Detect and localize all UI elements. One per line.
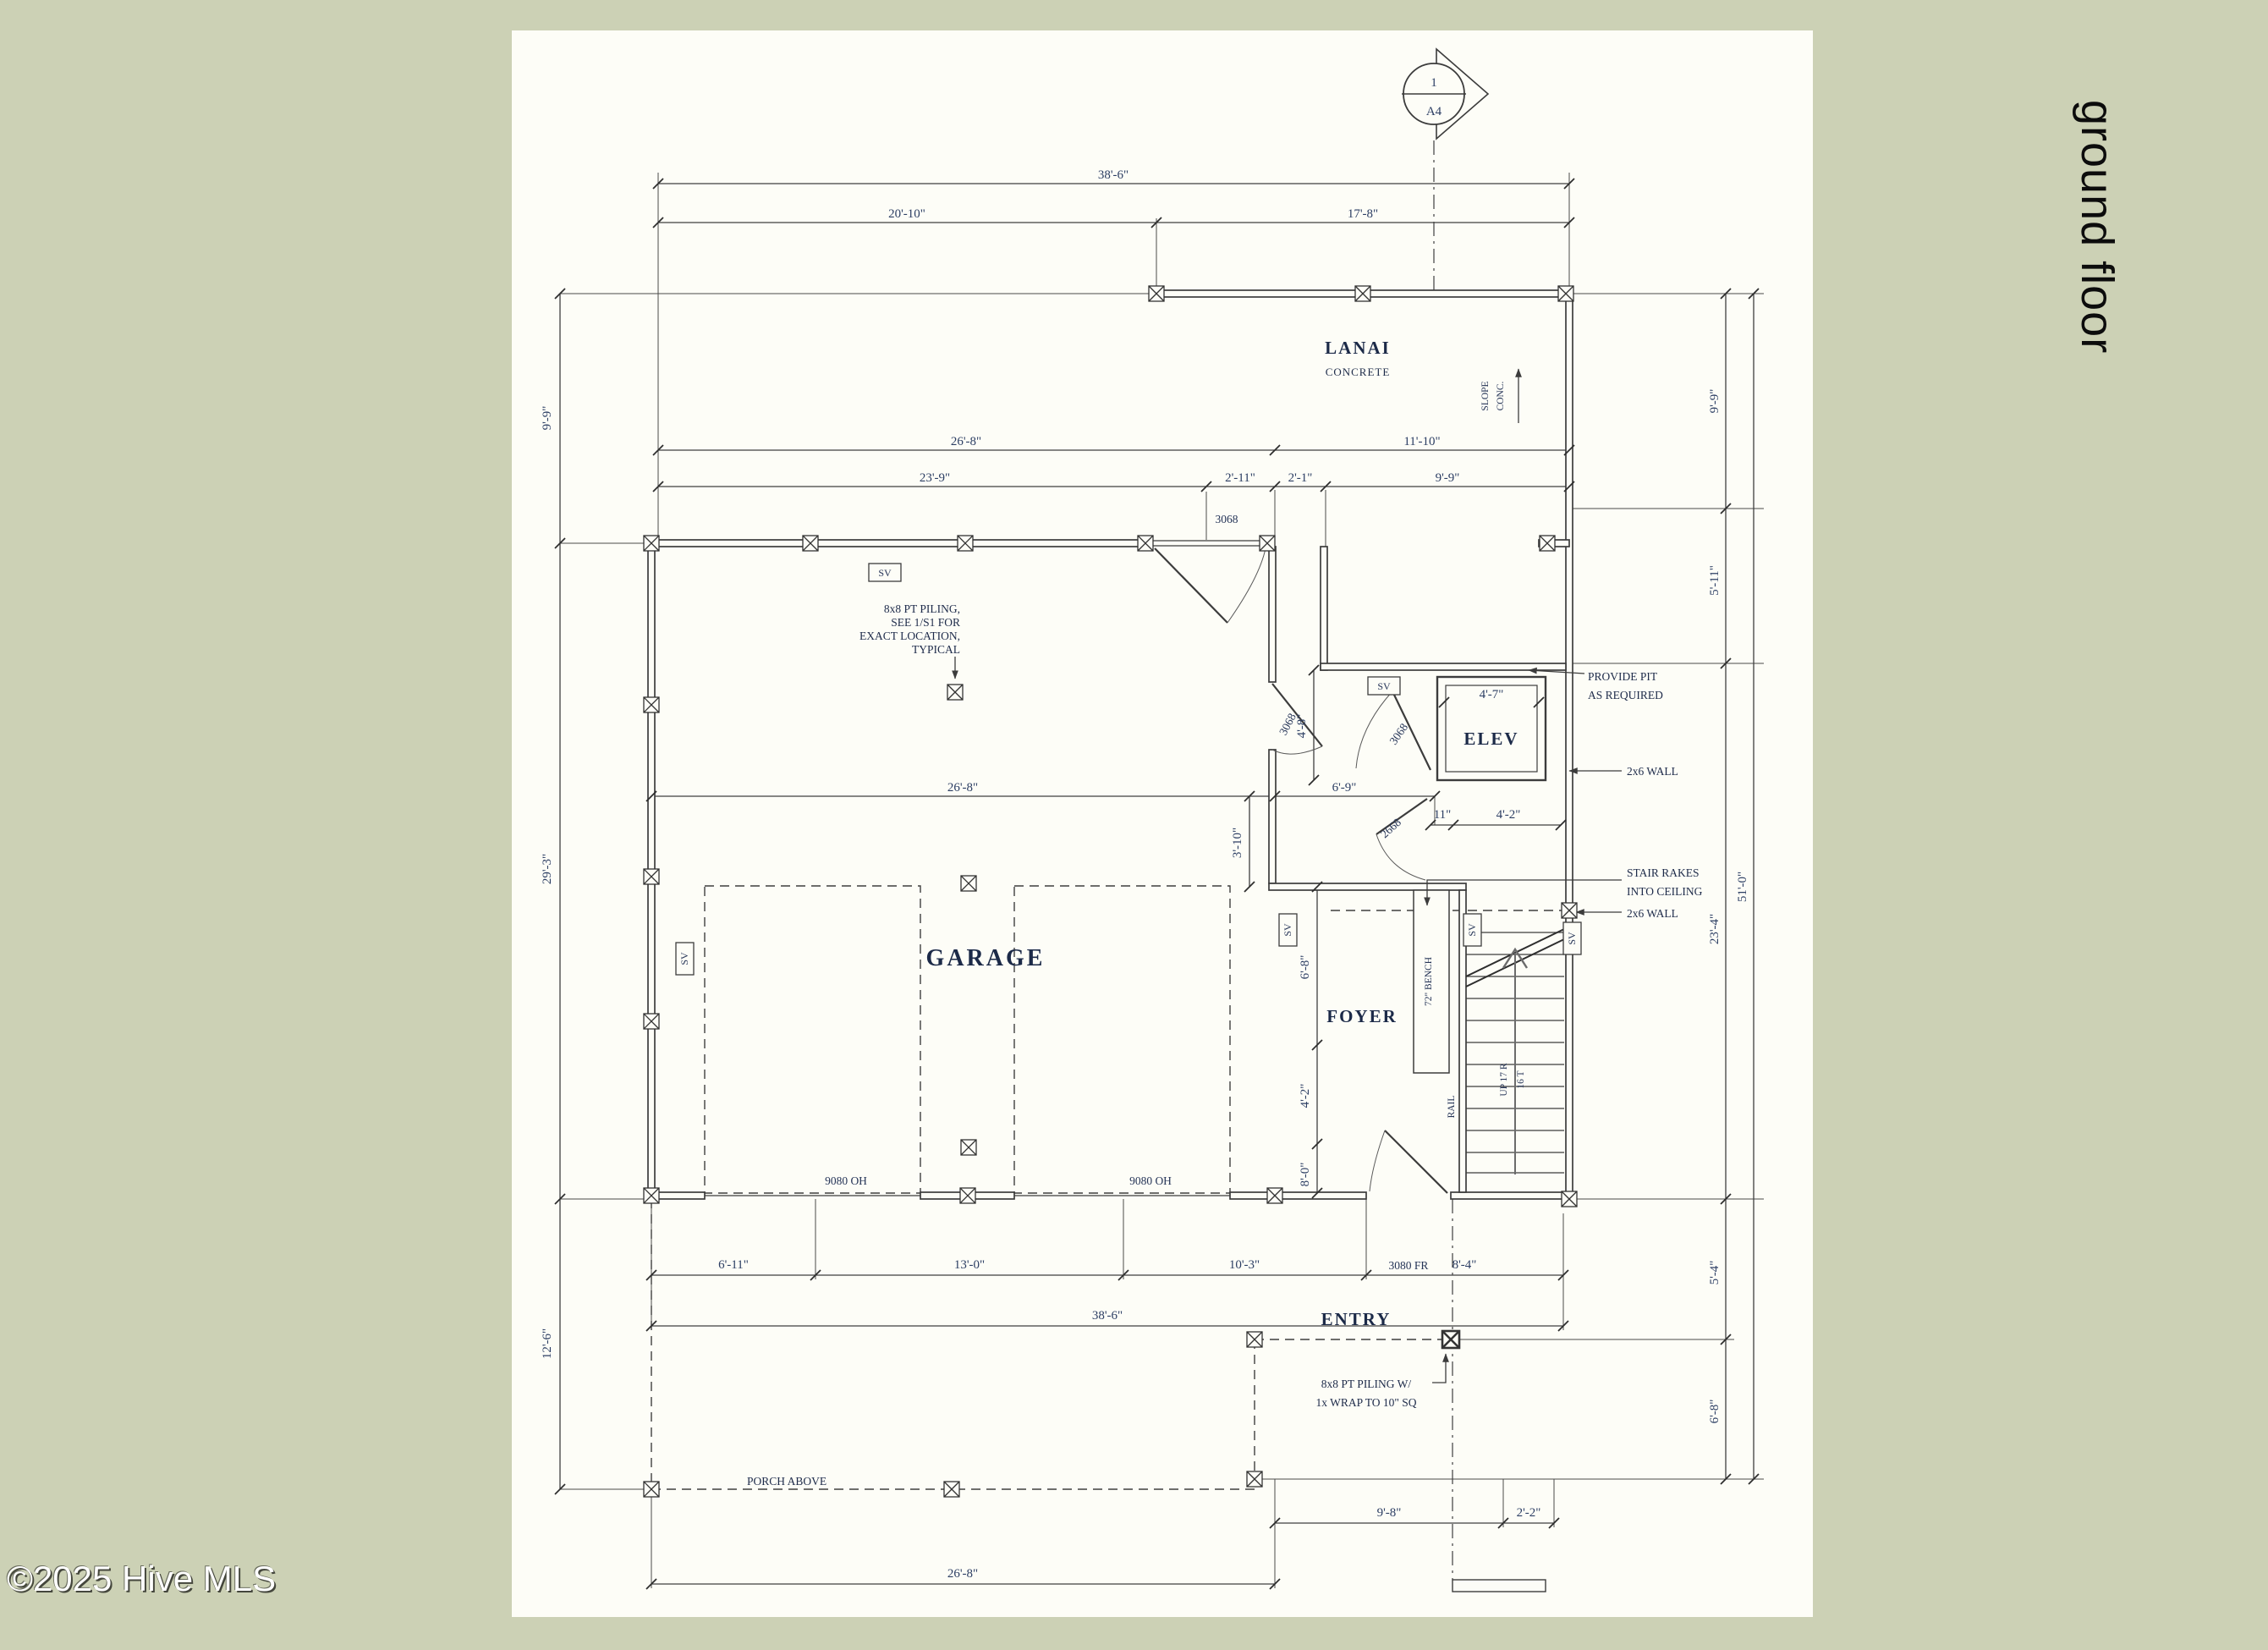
dim-51-0: 51'-0" — [1736, 872, 1749, 902]
dim-23-4: 23'-4" — [1708, 914, 1722, 944]
entry-piling-l2: 1x WRAP TO 10" SQ — [1315, 1396, 1416, 1409]
piling-symbol — [961, 876, 976, 891]
dim-6-8-right: 6'-8" — [1708, 1400, 1722, 1424]
door-label-9080-right2: 9080 OH — [1129, 1174, 1172, 1187]
piling-symbol — [644, 536, 659, 551]
entry-piling-l1: 8x8 PT PILING W/ — [1321, 1378, 1412, 1390]
dim-29-3: 29'-3" — [541, 854, 554, 884]
dim-12-6: 12'-6" — [541, 1328, 554, 1359]
piling-symbol — [944, 1482, 959, 1497]
slope-conc-label-2: CONC. — [1496, 381, 1506, 410]
dim-6-8-foyer: 6'-8" — [1299, 955, 1312, 980]
piling-symbol — [803, 536, 818, 551]
piling-symbol — [644, 697, 659, 712]
dim-6-11: 6'-11" — [718, 1258, 749, 1272]
piling-symbol — [947, 685, 963, 700]
dim-11in: 11" — [1434, 808, 1452, 822]
dim-8-4: 8'-4" — [1453, 1258, 1477, 1272]
entry-step — [1453, 1580, 1546, 1592]
piling-symbol — [958, 536, 973, 551]
dim-10-3: 10'-3" — [1229, 1258, 1260, 1272]
section-sheet: A4 — [1426, 105, 1442, 118]
dim-5-4: 5'-4" — [1708, 1261, 1722, 1285]
leaders — [955, 369, 1622, 1383]
door-label-2668: 2668 — [1378, 816, 1403, 840]
door-label-9080-left: 9080 OH — [825, 1174, 867, 1187]
piling-symbol — [1149, 286, 1164, 301]
room-label-lanai: LANAI — [1325, 338, 1391, 358]
dim-3-10: 3'-10" — [1231, 828, 1244, 858]
sv-label: SV — [1466, 923, 1478, 937]
up-label-2: 16 T — [1516, 1070, 1526, 1088]
piling-symbol — [644, 1014, 659, 1029]
door-label-3068-a: 3068 — [1216, 513, 1238, 525]
porch-above-label: PORCH ABOVE — [747, 1475, 826, 1488]
rail-label: RAIL — [1447, 1096, 1457, 1119]
piling-symbol — [644, 869, 659, 884]
page-side-label: ground floor — [2071, 100, 2123, 354]
bench-label: 72" BENCH — [1424, 957, 1434, 1006]
mls-watermark: ©2025 Hive MLS — [7, 1559, 276, 1599]
pit-note-l2: AS REQUIRED — [1588, 689, 1663, 701]
entry-piling-note: 8x8 PT PILING W/ 1x WRAP TO 10" SQ — [1315, 1378, 1416, 1409]
dim-2-11: 2'-11" — [1225, 471, 1255, 485]
piling-symbol — [1260, 536, 1275, 551]
room-label-garage: GARAGE — [926, 945, 1046, 971]
dim-26-8-interior: 26'-8" — [947, 781, 978, 795]
stairs — [1466, 929, 1564, 1174]
dim-38-6-top: 38'-6" — [1098, 168, 1129, 182]
drawing-sheet: 1 A4 SV SV SV SV SV SV LANAI CONCRETE SL… — [512, 30, 1813, 1617]
sv-label: SV — [1282, 923, 1293, 937]
dim-13-0: 13'-0" — [954, 1258, 985, 1272]
floor-plan-svg: 1 A4 SV SV SV SV SV SV LANAI CONCRETE SL… — [512, 30, 1813, 1617]
piling-symbol — [1558, 286, 1573, 301]
piling-symbol — [644, 1482, 659, 1497]
piling-symbol — [961, 1140, 976, 1155]
dim-9-9-top: 9'-9" — [1436, 471, 1460, 485]
dim-6-9: 6'-9" — [1332, 781, 1357, 795]
wall-2x6-note-1: 2x6 WALL — [1627, 765, 1678, 778]
piling-symbol — [1562, 1191, 1577, 1207]
piling-symbol — [1442, 1331, 1459, 1348]
piling-note-l1: 8x8 PT PILING, — [884, 602, 960, 615]
pit-note-l1: PROVIDE PIT — [1588, 670, 1658, 683]
section-number: 1 — [1431, 76, 1437, 90]
stair-note-l1: STAIR RAKES — [1627, 866, 1700, 879]
centerlines — [1434, 140, 1453, 1580]
room-label-entry: ENTRY — [1321, 1309, 1392, 1329]
piling-note-l3: EXACT LOCATION, — [859, 630, 960, 642]
piling-symbol — [1247, 1471, 1262, 1487]
dim-5-11: 5'-11" — [1708, 565, 1722, 596]
dim-2-2: 2'-2" — [1517, 1506, 1541, 1520]
dim-26-8-bottom: 26'-8" — [947, 1567, 978, 1581]
dim-8-0: 8'-0" — [1299, 1163, 1312, 1187]
dim-17-8: 17'-8" — [1348, 207, 1378, 221]
garage-door-left-dashed — [705, 886, 920, 1193]
piling-note: 8x8 PT PILING, SEE 1/S1 FOR EXACT LOCATI… — [859, 602, 960, 656]
piling-symbol — [1247, 1332, 1262, 1347]
piling-symbol — [644, 1188, 659, 1203]
wall-2x6-note-2: 2x6 WALL — [1627, 907, 1678, 920]
dim-11-10: 11'-10" — [1403, 435, 1440, 448]
page: { "page": { "background": "#ccd1b5", "sh… — [0, 0, 2268, 1650]
dim-9-9-left: 9'-9" — [541, 406, 554, 431]
sv-label: SV — [1377, 680, 1391, 692]
dim-2-1: 2'-1" — [1288, 471, 1313, 485]
sv-label: SV — [678, 952, 690, 965]
piling-symbol — [1267, 1188, 1282, 1203]
stair-note-l2: INTO CEILING — [1627, 885, 1703, 898]
piling-symbol — [1355, 286, 1370, 301]
door-label-3080: 3080 FR — [1389, 1259, 1429, 1272]
room-label-lanai-sub: CONCRETE — [1326, 366, 1391, 378]
garage-door-right-dashed — [1014, 886, 1230, 1193]
dim-20-10: 20'-10" — [888, 207, 925, 221]
dimension-ticks — [555, 179, 1759, 1589]
dimension-lines — [560, 184, 1754, 1584]
stair-rake-note: STAIR RAKES INTO CEILING — [1627, 866, 1703, 898]
piling-note-l2: SEE 1/S1 FOR — [891, 616, 960, 629]
dim-4-2-foyer: 4'-2" — [1299, 1084, 1312, 1108]
piling-symbol — [1138, 536, 1153, 551]
room-label-elev: ELEV — [1463, 729, 1518, 749]
up-label-1: UP 17 R — [1499, 1063, 1509, 1097]
slope-conc-label-1: SLOPE — [1480, 381, 1491, 410]
door-label-3068-c: 3068 — [1387, 721, 1410, 747]
section-marker: 1 A4 — [1402, 49, 1488, 139]
dim-4-2-stair: 4'-2" — [1496, 808, 1521, 822]
sv-label: SV — [1566, 932, 1578, 945]
dim-38-6-bottom: 38'-6" — [1092, 1309, 1123, 1323]
piling-note-l4: TYPICAL — [912, 643, 960, 656]
piling-symbol — [960, 1188, 975, 1203]
piling-symbol — [1540, 536, 1555, 551]
dim-9-8: 9'-8" — [1377, 1506, 1402, 1520]
room-label-foyer: FOYER — [1326, 1006, 1398, 1026]
dim-23-9: 23'-9" — [920, 471, 950, 485]
dim-9-9-right: 9'-9" — [1708, 389, 1722, 414]
dim-26-8-a: 26'-8" — [951, 435, 981, 448]
dim-4-7: 4'-7" — [1480, 688, 1504, 701]
sv-label: SV — [878, 567, 892, 579]
pit-note: PROVIDE PIT AS REQUIRED — [1588, 670, 1663, 701]
piling-symbol — [1562, 903, 1577, 918]
dim-4-8: 4'-8" — [1295, 714, 1309, 739]
